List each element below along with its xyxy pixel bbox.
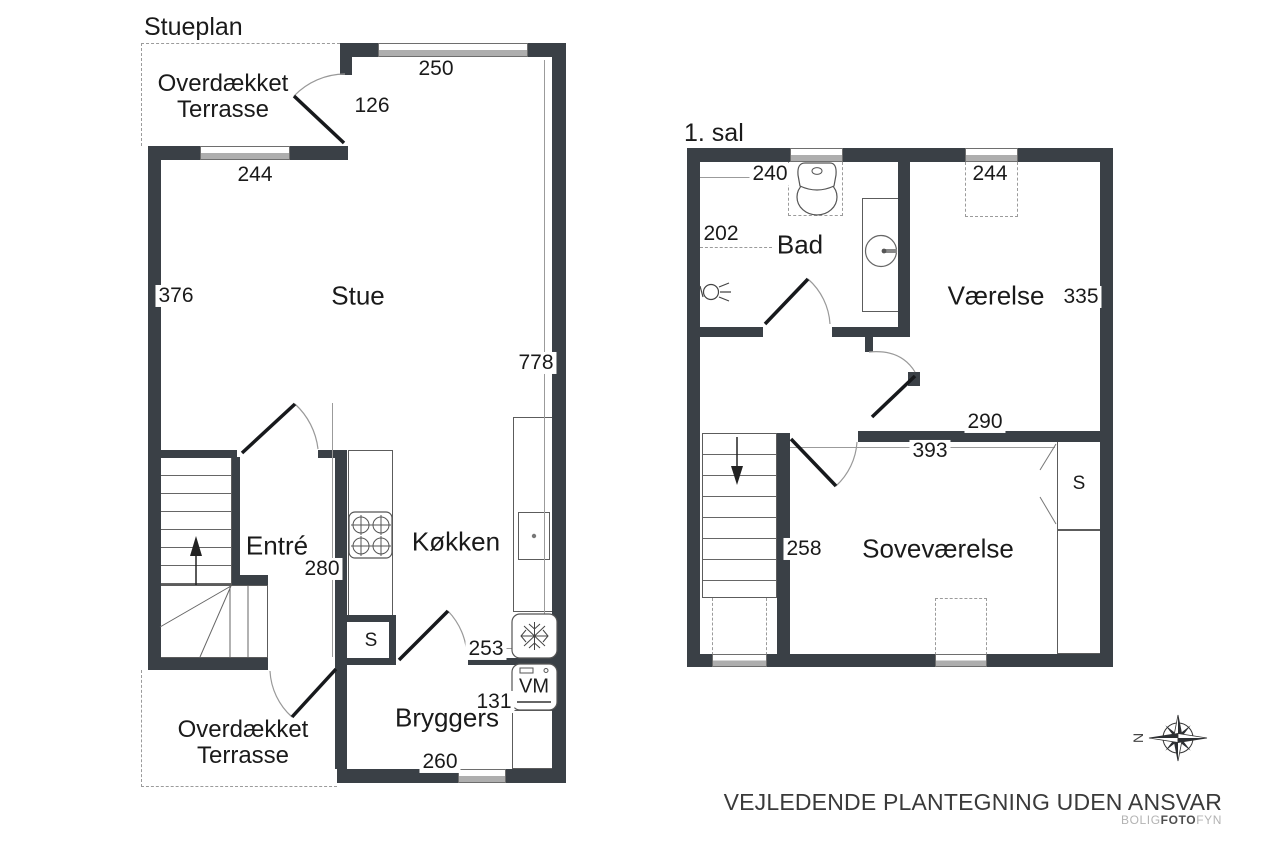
skylight-recess (935, 598, 987, 655)
skylight-recess (712, 598, 767, 655)
window (200, 146, 290, 160)
terrace-label-line2: Terrasse (178, 743, 309, 769)
wall (832, 327, 910, 337)
room-label-sovevaerelse: Soveværelse (862, 535, 1014, 562)
measure-line (332, 403, 333, 657)
wall (148, 658, 268, 670)
kitchen-cabinet-left (348, 450, 393, 617)
window (965, 148, 1018, 162)
terrace-label-line2: Terrasse (158, 97, 289, 123)
terrace-top-label: Overdækket Terrasse (158, 71, 289, 123)
wall (148, 450, 237, 458)
terrace-label-line1: Overdækket (158, 71, 289, 97)
closet-label: S (1073, 474, 1086, 494)
room-label-bryggers: Bryggers (395, 704, 499, 731)
window (935, 654, 987, 667)
door-bad (765, 279, 830, 324)
dim-entre-width: 280 (301, 558, 342, 580)
dim-vaerelse-width: 290 (964, 411, 1005, 433)
window (712, 654, 767, 667)
wall (340, 43, 352, 75)
room-label-entre: Entré (246, 532, 308, 559)
dim-stue-side: 376 (155, 285, 196, 307)
wall (687, 148, 1113, 162)
wall (552, 43, 566, 783)
window (458, 769, 506, 783)
dim-left-window: 244 (234, 164, 275, 186)
wall (1100, 148, 1113, 667)
window (378, 43, 528, 57)
dim-right-window: 244 (969, 163, 1010, 185)
wall (898, 162, 910, 330)
wall (232, 575, 268, 585)
measure-line-dashed (700, 247, 772, 248)
room-label-bad: Bad (777, 231, 823, 258)
room-label-kokken: Køkken (412, 528, 500, 555)
shower-icon (700, 283, 731, 301)
compass-icon: N (1130, 715, 1207, 761)
dim-stair-side: 258 (783, 538, 824, 560)
ground-floor-title: Stueplan (144, 13, 243, 42)
dim-top-window: 250 (415, 58, 456, 80)
stairs-up (159, 457, 232, 585)
room-label-vaerelse: Værelse (948, 282, 1045, 309)
wall (148, 146, 161, 670)
first-floor-title: 1. sal (684, 119, 744, 148)
closet-label: S (365, 631, 378, 651)
wardrobe-doors (1040, 444, 1056, 524)
brand-part-fyn: FYN (1196, 813, 1222, 827)
terrace-bottom-label: Overdækket Terrasse (178, 717, 309, 769)
brand-part-bolig: BOLIG (1121, 813, 1161, 827)
dim-right-side: 778 (515, 352, 556, 374)
dim-left-window: 240 (749, 163, 790, 185)
wall (908, 372, 920, 386)
wall (700, 327, 763, 337)
door-kokken-bryggers (399, 611, 467, 660)
door-entre-stue (242, 404, 318, 453)
wardrobe-lower (1057, 530, 1103, 654)
bathroom-vanity (862, 198, 899, 312)
dim-bad-width: 202 (700, 223, 741, 245)
brand-logo: BOLIGFOTOFYN (1121, 813, 1222, 827)
compass-north-label: N (1130, 733, 1146, 743)
disclaimer-text: VEJLEDENDE PLANTEGNING UDEN ANSVAR (724, 789, 1222, 816)
fridge-icon (512, 614, 557, 658)
washing-machine-label: VM (519, 677, 549, 698)
wall (335, 450, 347, 769)
brand-part-foto: FOTO (1161, 813, 1197, 827)
wall (687, 148, 700, 667)
stairs-winder (159, 585, 268, 658)
dim-kokken-width: 253 (465, 638, 506, 660)
wall (347, 658, 396, 665)
dim-vaerelse-depth: 335 (1060, 286, 1101, 308)
washer-lower-cabinet (512, 710, 557, 769)
dim-sovevaerelse-width: 393 (909, 440, 950, 462)
dim-terrace-door: 126 (351, 95, 392, 117)
window (790, 148, 843, 162)
wall (865, 337, 873, 352)
room-label-stue: Stue (331, 282, 385, 309)
wall (232, 457, 240, 577)
dim-bryggers-width: 260 (419, 751, 460, 773)
kitchen-sink (518, 512, 550, 560)
terrace-label-line1: Overdækket (178, 717, 309, 743)
floor-plan-page: Stueplan (0, 0, 1280, 853)
toilet-recess (788, 162, 843, 216)
stairs-down (702, 433, 777, 598)
